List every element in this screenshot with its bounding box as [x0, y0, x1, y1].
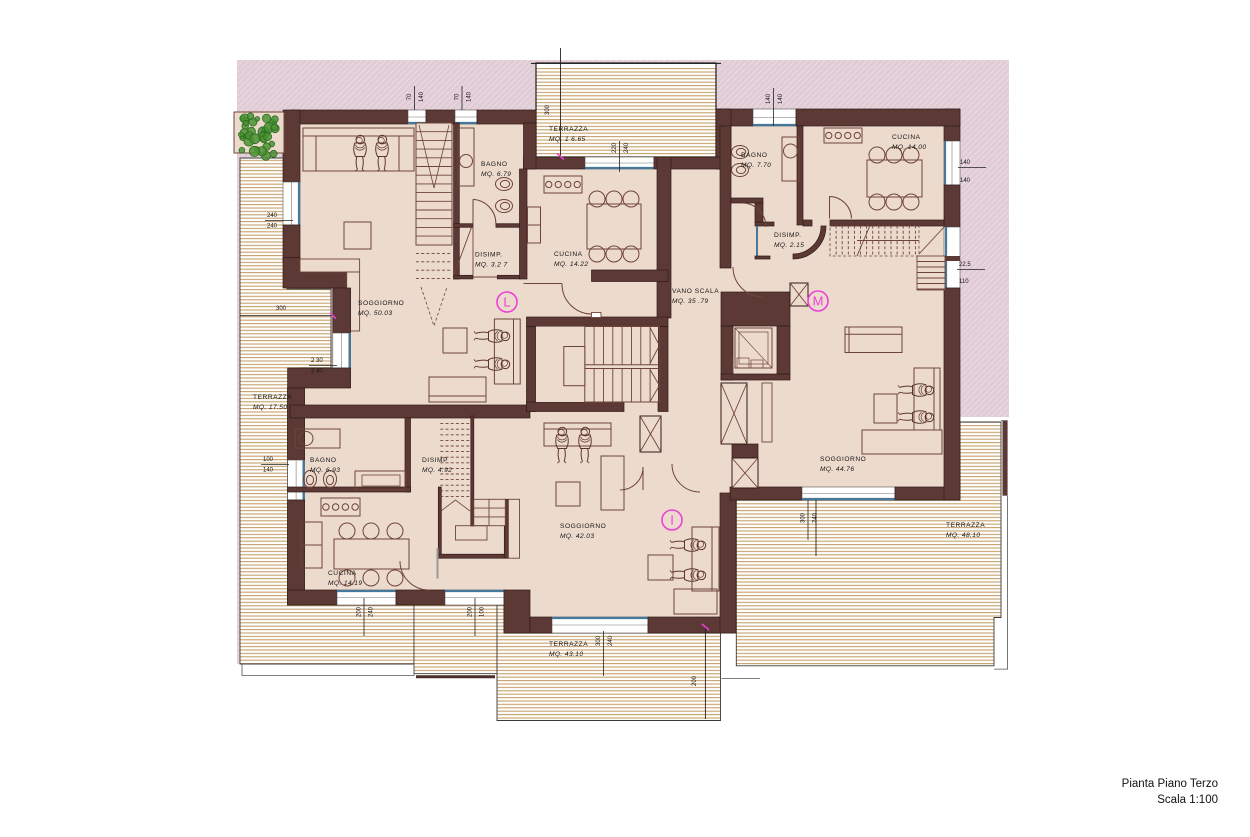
svg-text:BAGNO: BAGNO	[481, 161, 508, 168]
svg-text:BAGNO: BAGNO	[741, 152, 768, 159]
svg-text:MQ. 2.15: MQ. 2.15	[774, 242, 804, 249]
svg-text:2 40: 2 40	[311, 369, 323, 375]
svg-text:SOGGIORNO: SOGGIORNO	[820, 456, 866, 463]
svg-text:CUCINA: CUCINA	[328, 570, 357, 577]
svg-text:I: I	[670, 513, 674, 528]
svg-text:TERRAZZA: TERRAZZA	[549, 641, 588, 648]
svg-text:L: L	[503, 295, 510, 310]
svg-text:TERRAZZA: TERRAZZA	[253, 394, 292, 401]
svg-text:22.5: 22.5	[959, 262, 971, 268]
svg-text:220: 220	[612, 142, 618, 153]
svg-text:MQ. 48.10: MQ. 48.10	[946, 532, 980, 539]
svg-text:140: 140	[467, 91, 473, 102]
svg-text:240: 240	[369, 606, 375, 617]
svg-text:140: 140	[778, 93, 784, 104]
svg-text:200: 200	[357, 606, 363, 617]
svg-text:140: 140	[766, 93, 772, 104]
svg-text:110: 110	[959, 279, 969, 285]
svg-text:300: 300	[801, 512, 807, 523]
svg-text:Pianta Piano Terzo: Pianta Piano Terzo	[1122, 778, 1218, 790]
svg-text:300: 300	[545, 104, 551, 115]
svg-text:MQ. 7.70: MQ. 7.70	[741, 162, 771, 169]
svg-text:MQ. 50.03: MQ. 50.03	[358, 310, 392, 317]
svg-text:200: 200	[468, 606, 474, 617]
svg-text:MQ. 43.10: MQ. 43.10	[549, 651, 583, 658]
svg-text:2 30: 2 30	[311, 358, 323, 364]
svg-text:200: 200	[692, 675, 698, 686]
svg-text:240: 240	[813, 512, 819, 523]
svg-text:M: M	[813, 294, 824, 309]
svg-text:MQ. 17.50: MQ. 17.50	[253, 404, 287, 411]
svg-text:100: 100	[263, 457, 274, 463]
svg-text:MQ. 14.22: MQ. 14.22	[554, 261, 588, 268]
svg-text:240: 240	[267, 224, 278, 230]
svg-text:MQ. 44.76: MQ. 44.76	[820, 466, 854, 473]
svg-text:100: 100	[480, 606, 486, 617]
svg-text:TERRAZZA: TERRAZZA	[549, 126, 588, 133]
svg-text:SOGGIORNO: SOGGIORNO	[358, 300, 404, 307]
svg-text:300: 300	[596, 635, 602, 646]
svg-text:CUCINA: CUCINA	[892, 134, 921, 141]
svg-text:CUCINA: CUCINA	[554, 251, 583, 258]
svg-text:DISIMP.: DISIMP.	[774, 232, 802, 239]
svg-text:MQ. 4.92: MQ. 4.92	[422, 467, 452, 474]
svg-text:240: 240	[267, 213, 278, 219]
svg-text:MQ. 6.79: MQ. 6.79	[481, 171, 511, 178]
svg-text:140: 140	[419, 91, 425, 102]
svg-text:MQ. 35 .79: MQ. 35 .79	[672, 298, 709, 305]
svg-text:BAGNO: BAGNO	[310, 457, 337, 464]
svg-text:Scala 1:100: Scala 1:100	[1157, 794, 1218, 806]
svg-text:MQ. 6.93: MQ. 6.93	[310, 467, 340, 474]
svg-text:MQ. 1 6.65: MQ. 1 6.65	[549, 136, 586, 143]
svg-text:240: 240	[608, 635, 614, 646]
svg-text:SOGGIORNO: SOGGIORNO	[560, 523, 606, 530]
svg-text:TERRAZZA: TERRAZZA	[946, 522, 985, 529]
svg-text:MQ. 3.2 7: MQ. 3.2 7	[475, 262, 508, 269]
svg-text:MQ. 14.00: MQ. 14.00	[892, 144, 926, 151]
svg-text:70: 70	[407, 93, 413, 100]
svg-text:240: 240	[624, 142, 630, 153]
svg-text:DISIMP: DISIMP	[422, 457, 448, 464]
svg-text:300: 300	[276, 306, 287, 312]
svg-text:MQ. 42.03: MQ. 42.03	[560, 533, 594, 540]
svg-text:VANO SCALA: VANO SCALA	[672, 288, 719, 295]
svg-text:70: 70	[455, 93, 461, 100]
svg-text:140: 140	[960, 160, 971, 166]
svg-text:140: 140	[960, 178, 971, 184]
svg-text:DISIMP.: DISIMP.	[475, 252, 503, 259]
svg-text:140: 140	[263, 468, 274, 474]
svg-text:MQ. 14.19: MQ. 14.19	[328, 580, 362, 587]
